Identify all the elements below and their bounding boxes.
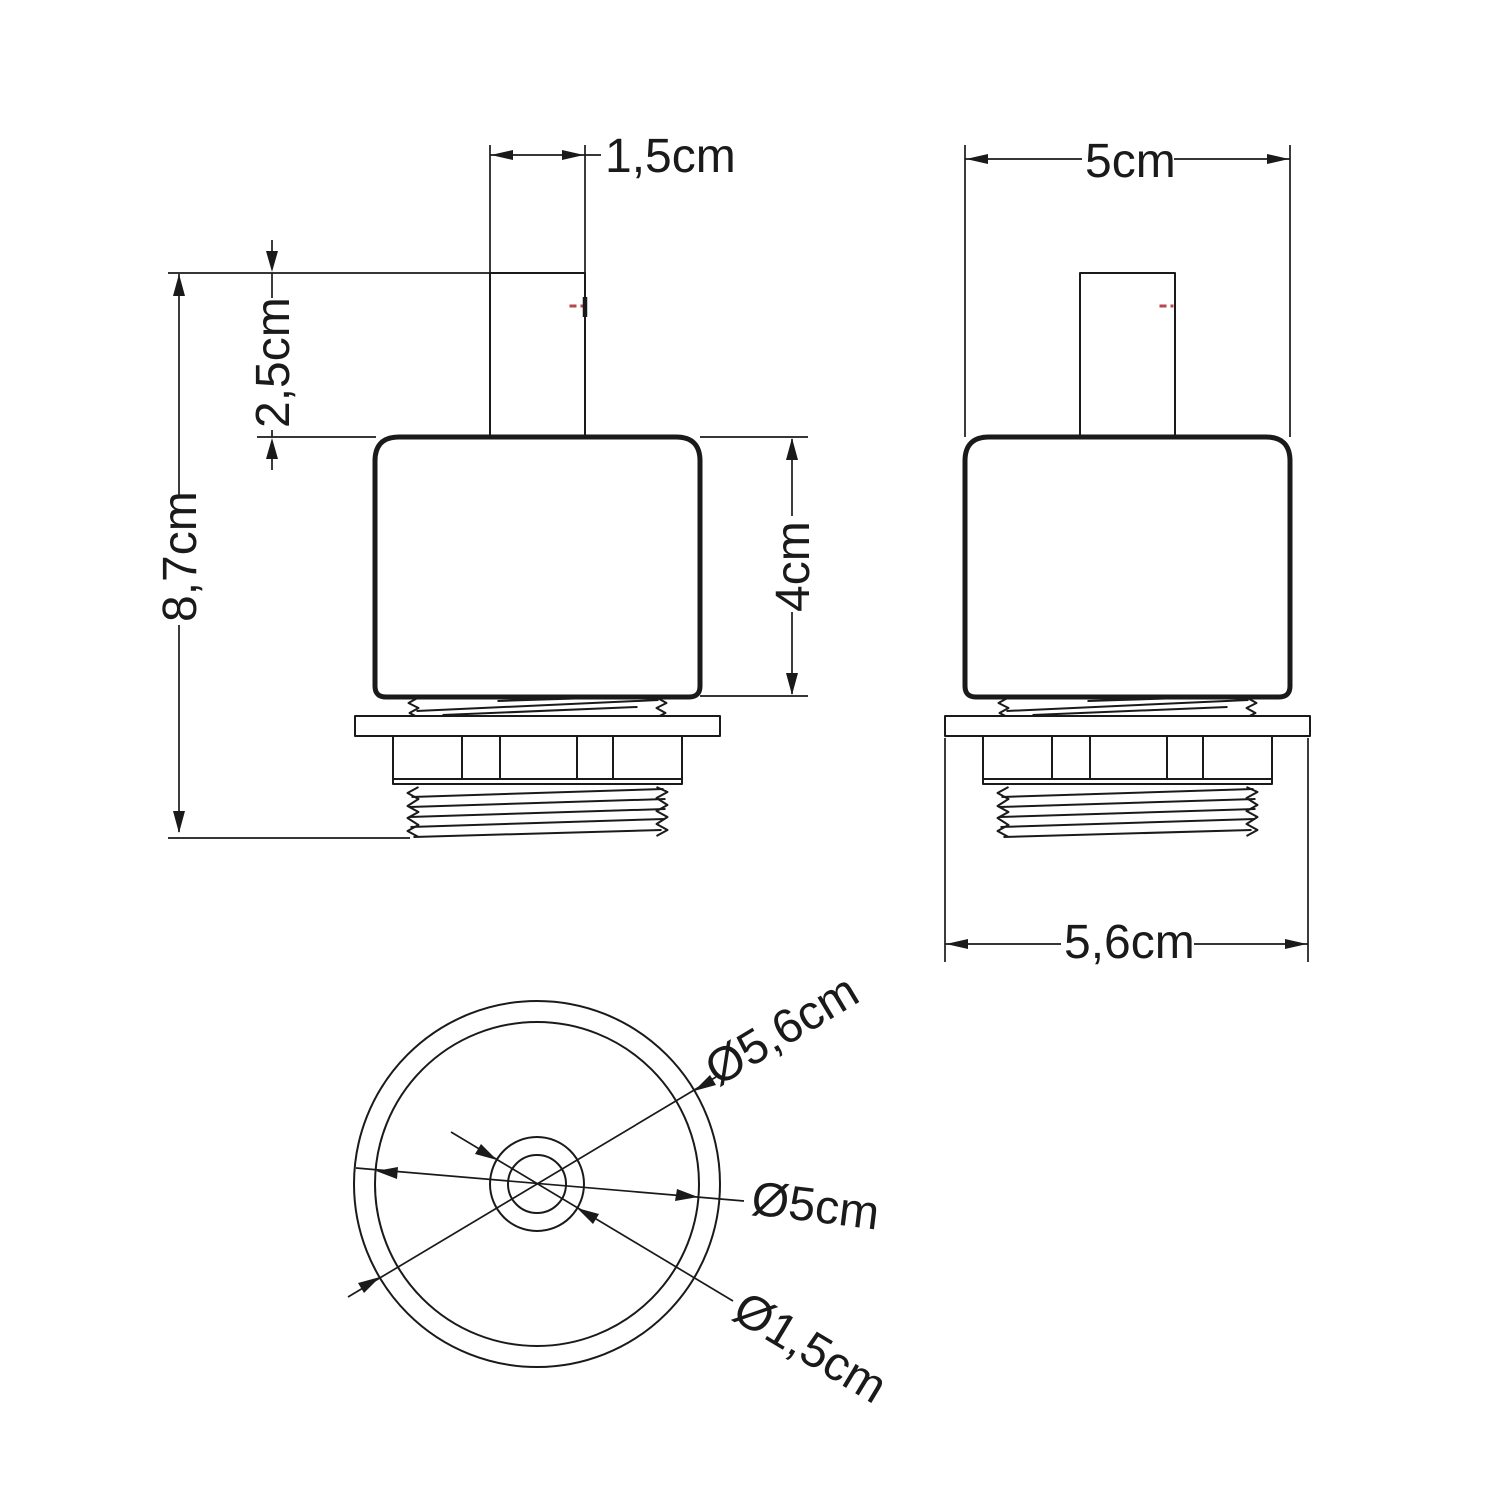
bottom-view: Ø5,6cm Ø5cm Ø1,5cm bbox=[348, 964, 896, 1414]
dia-stem-label: Ø1,5cm bbox=[724, 1282, 895, 1414]
side-view: 5cm 5,6cm bbox=[945, 135, 1310, 969]
dim-flange-width: 5,6cm bbox=[945, 916, 1308, 969]
technical-drawing: 1,5cm 2,5cm 8,7cm 4cm bbox=[0, 0, 1500, 1500]
dim-total-height-label: 8,7cm bbox=[154, 491, 207, 622]
front-fixture bbox=[355, 273, 720, 837]
dim-body-width-label: 5cm bbox=[1085, 135, 1176, 188]
side-fixture bbox=[945, 273, 1310, 837]
dia-body: Ø5cm bbox=[356, 1167, 882, 1241]
dim-body-height-label: 4cm bbox=[767, 521, 820, 612]
front-view: 1,5cm 2,5cm 8,7cm 4cm bbox=[154, 130, 820, 838]
dia-flange-label: Ø5,6cm bbox=[696, 964, 867, 1096]
drawing-page: 1,5cm 2,5cm 8,7cm 4cm bbox=[0, 0, 1500, 1500]
dim-total-height: 8,7cm bbox=[154, 274, 207, 833]
dim-stem-height-label: 2,5cm bbox=[247, 297, 300, 428]
dia-body-label: Ø5cm bbox=[749, 1172, 883, 1240]
dim-stem-width-label: 1,5cm bbox=[605, 130, 736, 183]
dim-stem-height: 2,5cm bbox=[247, 240, 300, 470]
dim-flange-width-label: 5,6cm bbox=[1064, 916, 1195, 969]
dim-stem-width: 1,5cm bbox=[490, 130, 736, 183]
dim-body-height: 4cm bbox=[767, 438, 820, 695]
dim-body-width: 5cm bbox=[965, 135, 1290, 188]
